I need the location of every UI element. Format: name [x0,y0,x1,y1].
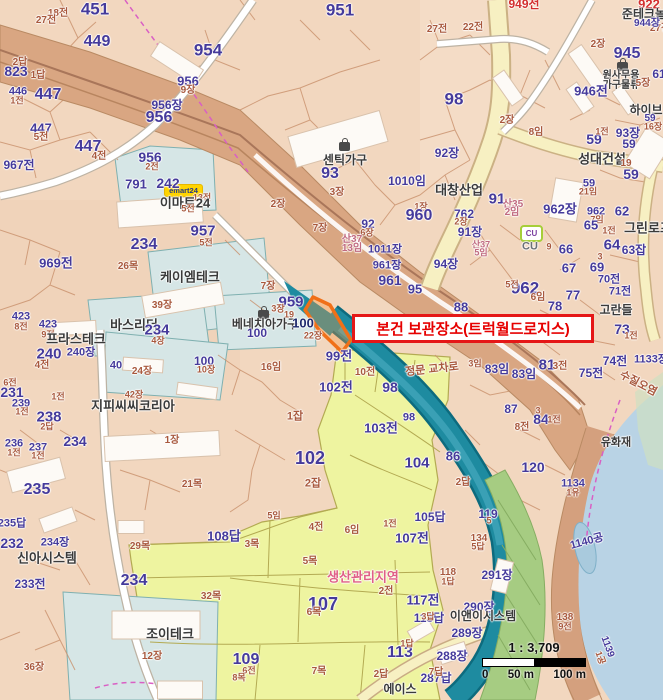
map-base-layer [0,0,663,700]
scale-tick-0: 0 [482,669,488,681]
scale-ratio: 1 : 3,709 [482,640,586,655]
cu-badge[interactable]: CU [520,225,543,242]
scale-bar-graphic [482,658,586,667]
scale-bar: 1 : 3,709 0 50 m 100 m [482,640,586,681]
furniture-store-icon [339,142,350,151]
map-canvas[interactable]: emart24 CU 45118전27전4492답8231답4461전44744… [0,0,663,700]
emart24-badge[interactable]: emart24 [165,185,202,196]
furniture-store-icon [617,62,628,71]
annotation-label: 본건 보관장소(트럭월드로지스) [376,318,570,339]
scale-tick-50: 50 m [508,669,534,681]
scale-tick-100: 100 m [553,669,586,681]
annotation-box: 본건 보관장소(트럭월드로지스) [352,314,594,343]
furniture-store-icon [258,310,269,319]
